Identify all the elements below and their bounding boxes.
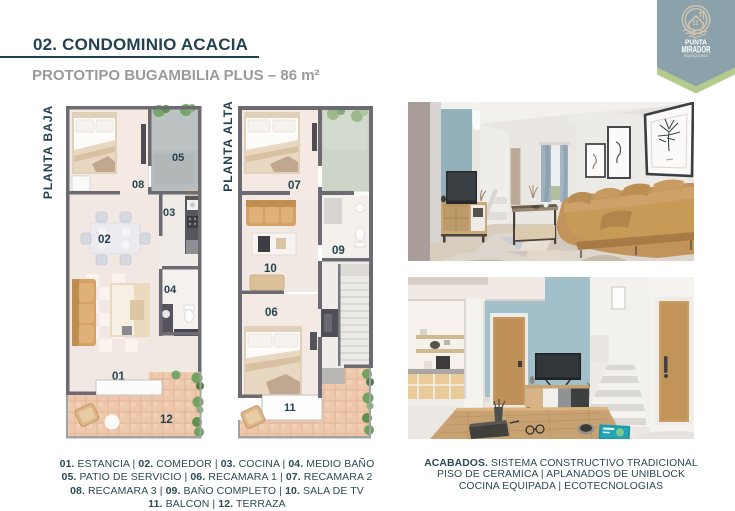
svg-text:02: 02 — [98, 234, 111, 246]
svg-text:10: 10 — [264, 263, 277, 275]
svg-text:06: 06 — [265, 307, 278, 319]
svg-text:04: 04 — [164, 284, 177, 296]
svg-text:11: 11 — [284, 402, 296, 414]
svg-text:12: 12 — [160, 414, 173, 426]
svg-text:TEQUESQUITENGO: TEQUESQUITENGO — [684, 54, 709, 58]
svg-text:MIRADOR: MIRADOR — [682, 45, 711, 55]
svg-text:08: 08 — [132, 179, 144, 191]
svg-text:05: 05 — [172, 152, 184, 164]
svg-text:09: 09 — [332, 245, 345, 257]
svg-text:07: 07 — [288, 180, 301, 192]
svg-text:03: 03 — [163, 207, 175, 219]
